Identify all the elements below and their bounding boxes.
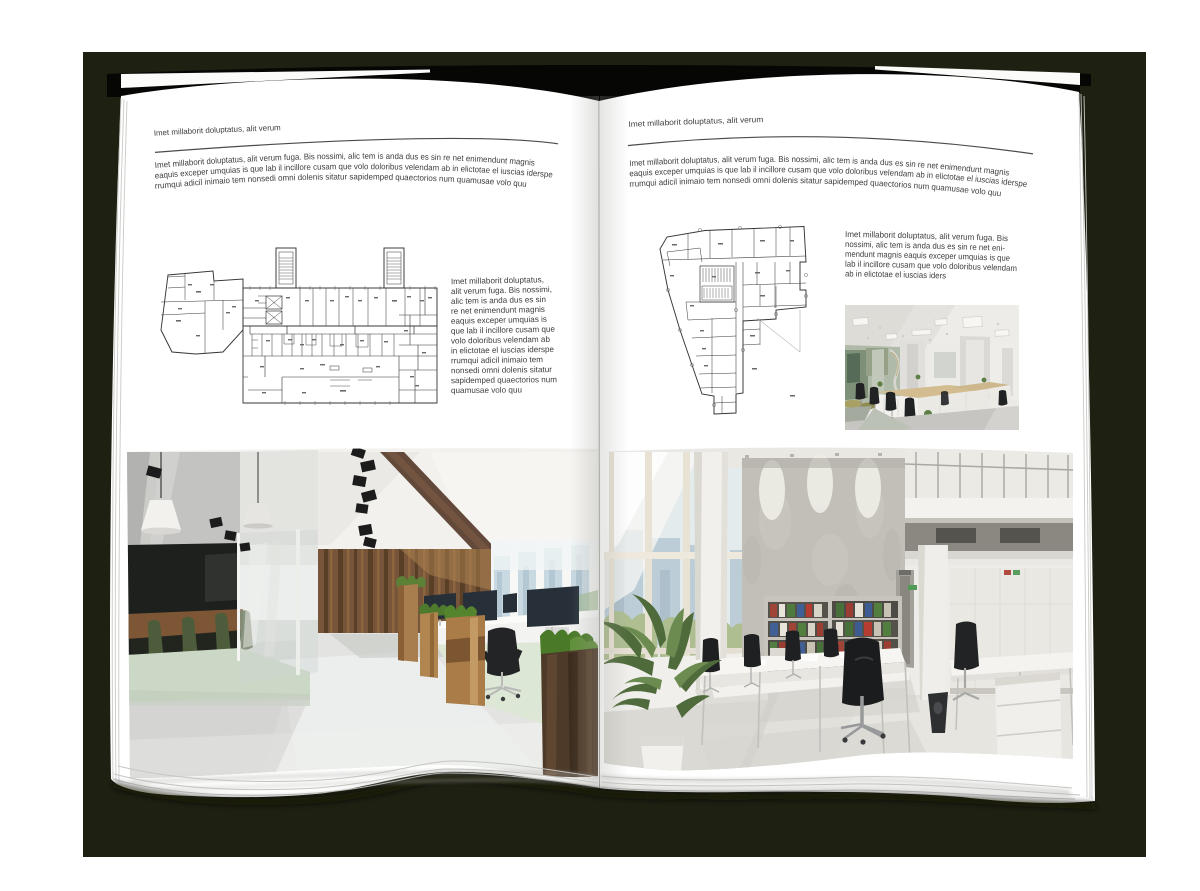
svg-text:in elictotae el iuscias idersp: in elictotae el iuscias iderspe (451, 345, 555, 356)
svg-text:sapidemped quaectorios num: sapidemped quaectorios num (451, 375, 557, 385)
svg-text:rrumqui adicil inimaio tem: rrumqui adicil inimaio tem (451, 355, 543, 365)
svg-text:nonsedi omni dolenis sitatur: nonsedi omni dolenis sitatur (451, 365, 552, 375)
svg-text:quamusae volo quu: quamusae volo quu (451, 386, 523, 396)
svg-text:volo doloribus velendam ab: volo doloribus velendam ab (451, 335, 551, 346)
